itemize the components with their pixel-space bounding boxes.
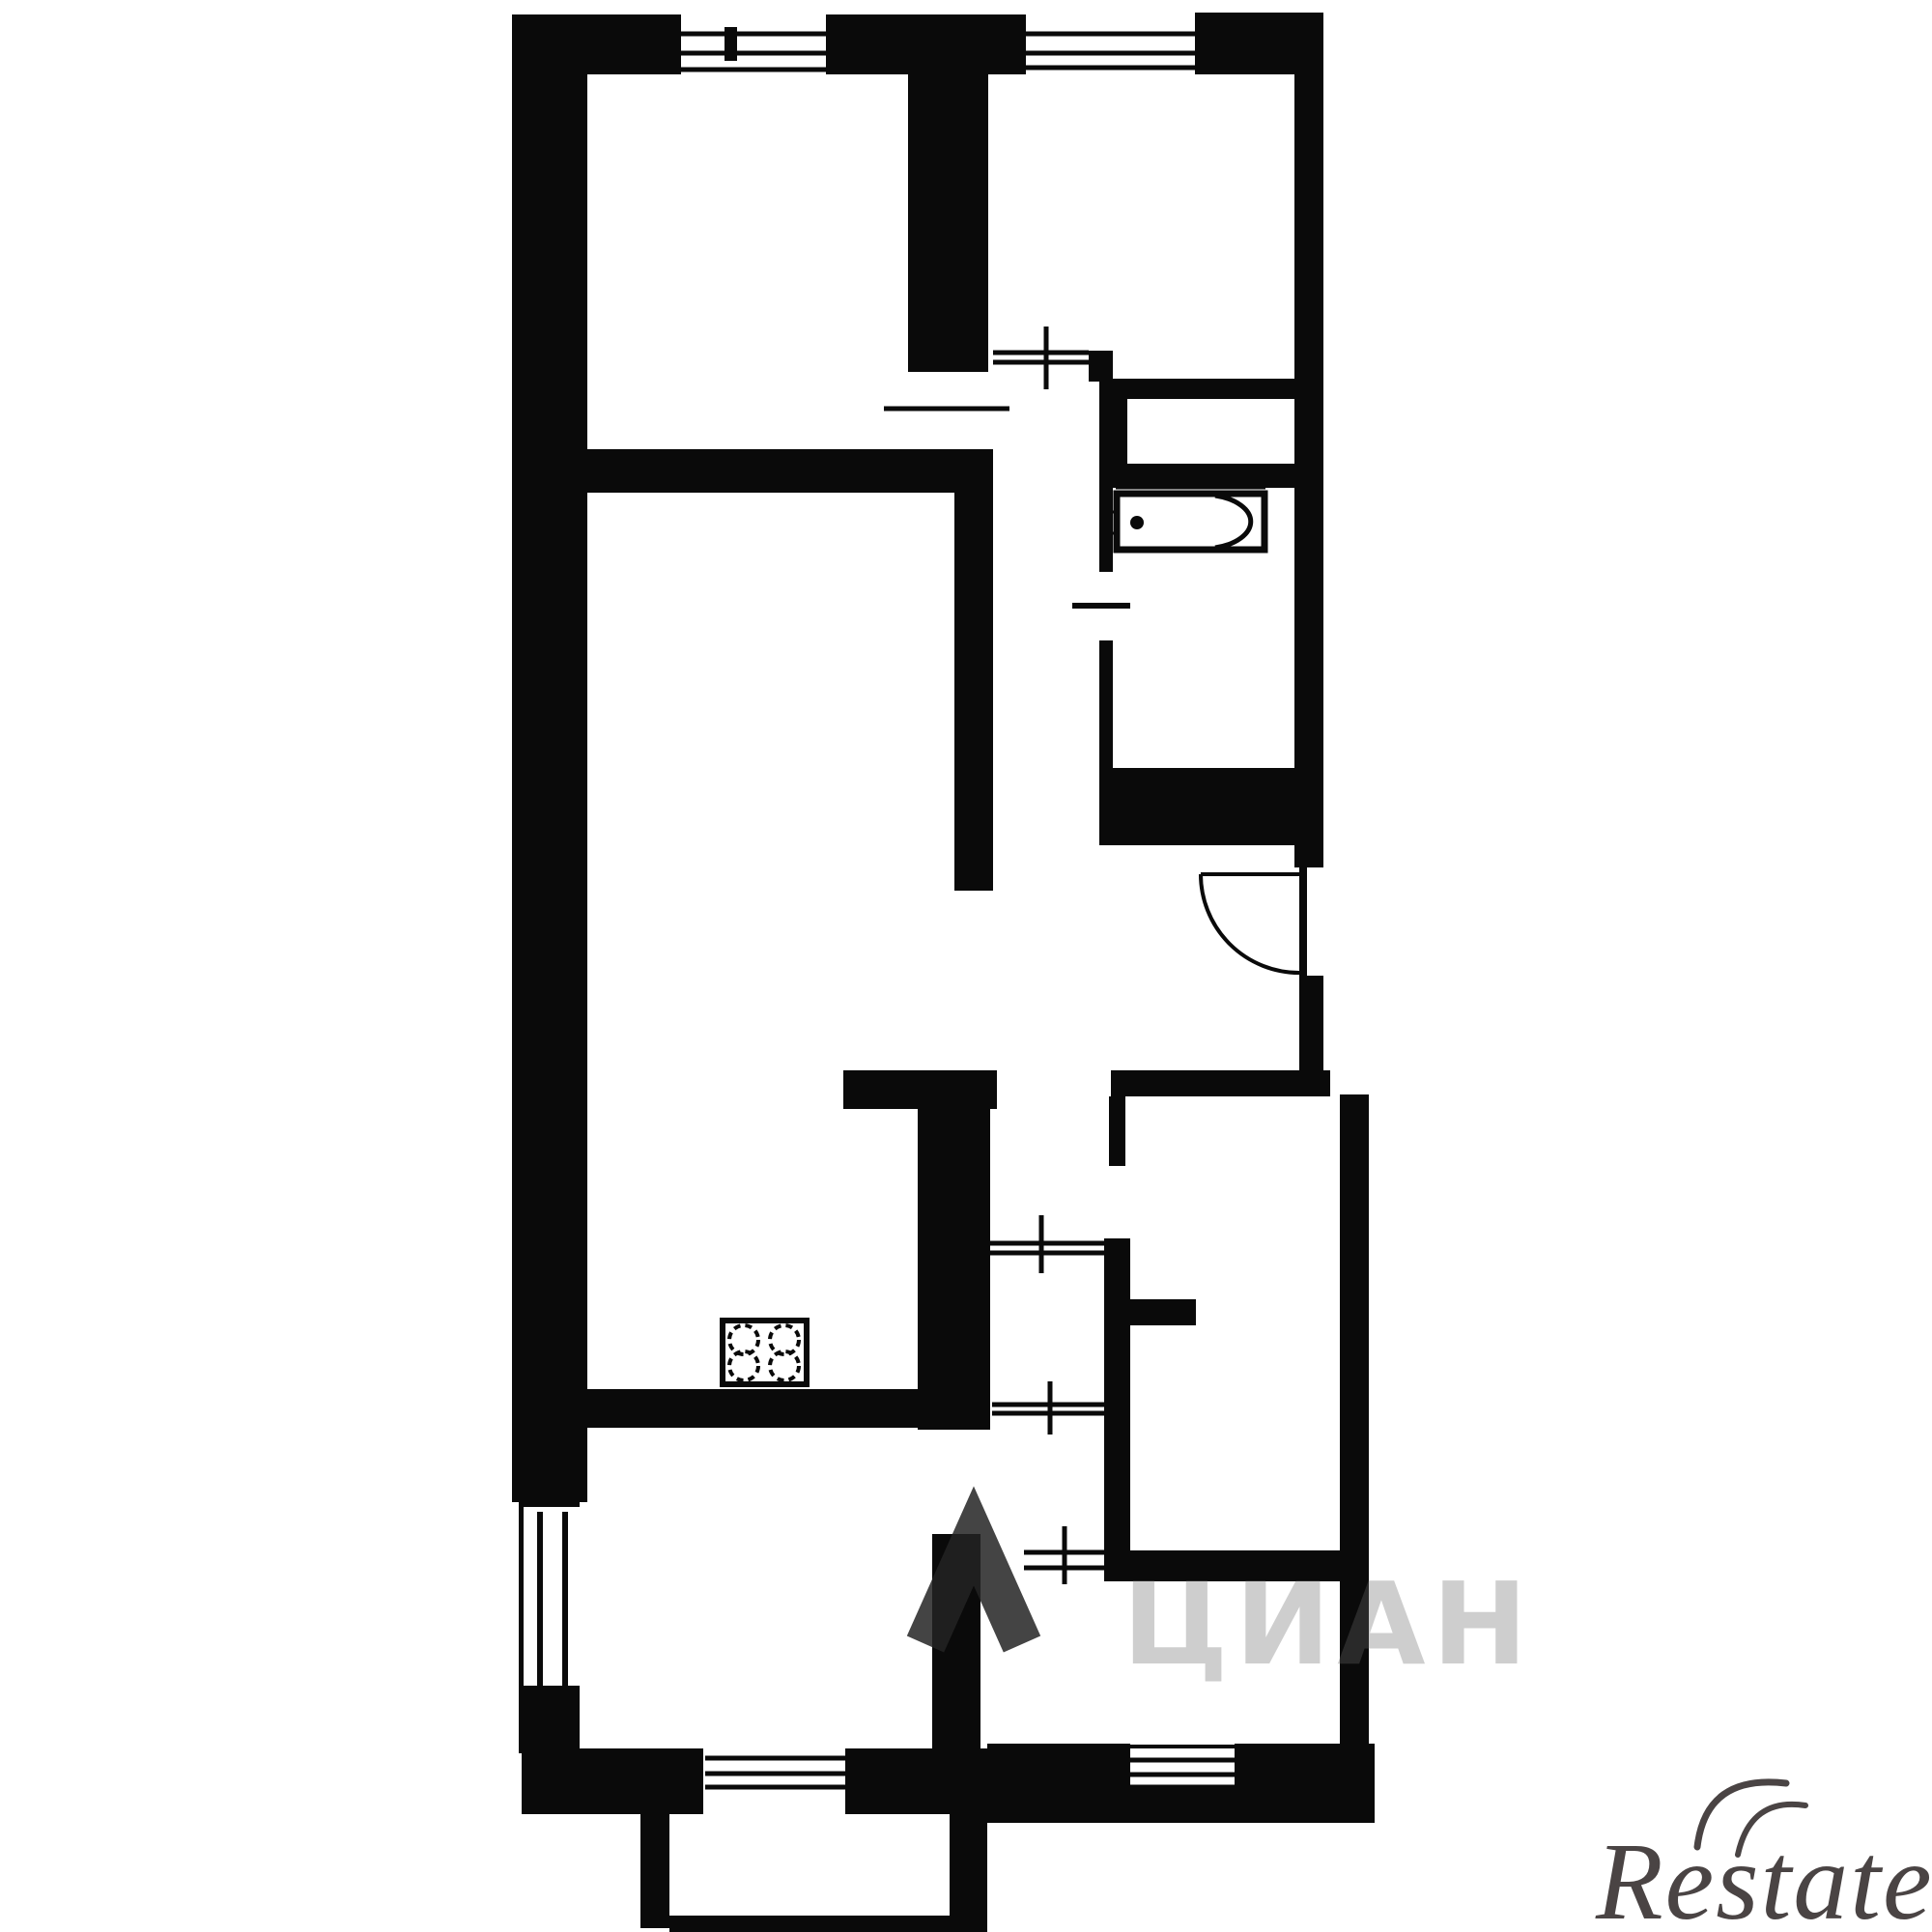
bottomleft-room-bottom-wall-left	[522, 1748, 703, 1814]
entrance-door-leaf	[1299, 867, 1307, 976]
right-outer-wall-below-door	[1299, 976, 1323, 1072]
passage-right-jamb	[1109, 1096, 1125, 1166]
balcony-bottom-wall	[669, 1916, 976, 1932]
left-window-cap-top	[522, 1492, 580, 1507]
top-wall-left	[512, 14, 681, 74]
left-outer-wall	[512, 14, 587, 1502]
kitchen-bottom-wall	[586, 1389, 982, 1428]
bathtub-faucet-dot	[1130, 516, 1144, 529]
bottomright-room-inner-stub	[1130, 1299, 1196, 1325]
bottom-room-bottom-wall-right	[1235, 1744, 1375, 1823]
bottomright-room-left-wall	[1104, 1238, 1130, 1581]
floor-plan-image: ЦИАН Restate	[0, 0, 1932, 1932]
floor-plan-svg	[0, 0, 1932, 1932]
hall-bottom-stub	[843, 1070, 997, 1109]
left-outer-face-at-window	[519, 1502, 524, 1700]
entrance-jamb-top	[1299, 845, 1323, 867]
room1-bottom-wall	[586, 449, 993, 493]
entrance-door-arc	[1201, 874, 1299, 973]
top-wall-middle	[826, 14, 1026, 74]
stove-burner-4	[770, 1351, 799, 1380]
window2-end-notch	[1195, 68, 1207, 74]
right-outer-wall-upper	[1294, 74, 1323, 867]
top-wall-right-block	[1195, 13, 1323, 74]
bathtub-rounded-end	[1215, 496, 1251, 548]
restate-watermark-text: Restate	[1596, 1818, 1932, 1932]
stove-burner-3	[729, 1351, 758, 1380]
bath-left-wall-upper	[1099, 353, 1113, 572]
bath-bottom-band	[1099, 768, 1323, 845]
wall-between-top-rooms	[908, 72, 988, 372]
balcony-right-wall	[950, 1797, 987, 1932]
bath-left-wall-lower	[1099, 640, 1113, 770]
balcony-left-wall	[640, 1814, 669, 1928]
bottomright-room-top-wall	[1111, 1070, 1330, 1096]
left-wall-below-window	[519, 1700, 580, 1753]
wc-top-wall	[1113, 379, 1299, 399]
kitchen-divider-upper	[918, 1109, 990, 1430]
cian-watermark-text: ЦИАН	[1122, 1557, 1534, 1690]
wc-bottom-wall	[1113, 464, 1297, 488]
stove-burner-1	[729, 1325, 758, 1354]
corridor-left-wall	[954, 493, 993, 891]
bottom-room-bottom-wall-left	[987, 1744, 1130, 1823]
bottom-room-window-sill	[1130, 1789, 1235, 1823]
stove-burner-2	[770, 1325, 799, 1354]
left-window-cap-bottom	[522, 1686, 580, 1703]
